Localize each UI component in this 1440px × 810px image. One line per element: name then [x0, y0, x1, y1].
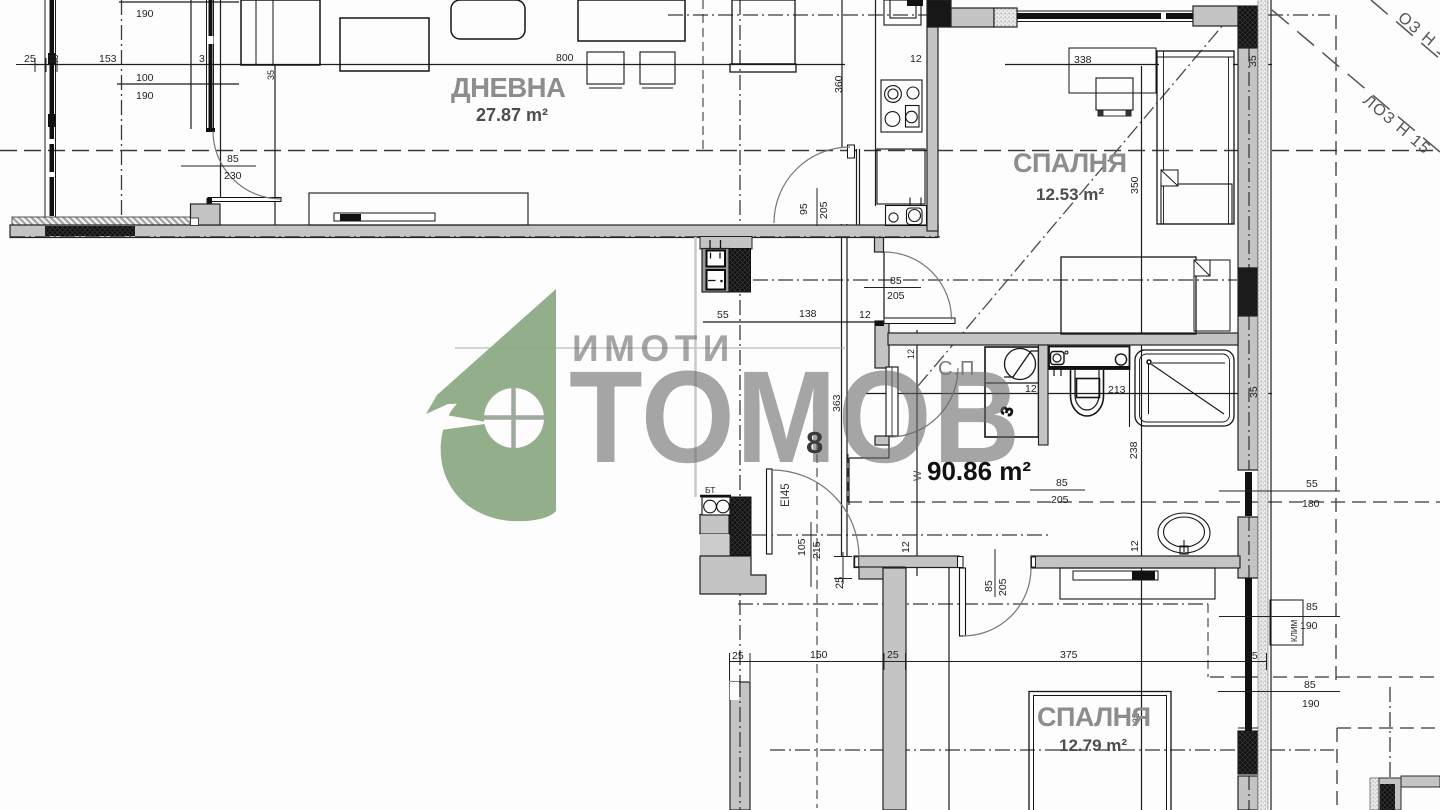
svg-text:338: 338 — [1074, 54, 1092, 66]
svg-text:100: 100 — [136, 72, 154, 84]
svg-text:363: 363 — [831, 394, 843, 412]
svg-text:85: 85 — [890, 275, 902, 287]
svg-text:85: 85 — [227, 153, 239, 165]
svg-text:25: 25 — [834, 577, 846, 589]
svg-text:150: 150 — [810, 649, 828, 661]
svg-text:55: 55 — [717, 309, 729, 321]
svg-text:СПАЛНЯ: СПАЛНЯ — [1013, 148, 1127, 178]
svg-text:12: 12 — [900, 541, 912, 553]
svg-text:25: 25 — [24, 53, 36, 65]
svg-text:190: 190 — [1300, 620, 1318, 632]
svg-text:800: 800 — [556, 52, 574, 64]
svg-text:205: 205 — [997, 578, 1009, 596]
svg-text:3: 3 — [199, 53, 205, 65]
svg-text:8: 8 — [806, 425, 823, 460]
svg-text:35: 35 — [1246, 650, 1258, 662]
svg-text:190: 190 — [136, 90, 154, 102]
svg-text:105: 105 — [796, 538, 808, 556]
svg-text:205: 205 — [1051, 494, 1069, 506]
svg-text:230: 230 — [224, 170, 242, 182]
svg-text:С.П: С.П — [938, 358, 975, 380]
svg-text:375: 375 — [1060, 649, 1078, 661]
svg-text:85: 85 — [983, 580, 995, 592]
svg-text:12: 12 — [910, 53, 922, 65]
svg-text:215: 215 — [811, 541, 823, 559]
svg-text:ДНЕВНА: ДНЕВНА — [451, 72, 566, 103]
svg-text:85: 85 — [1304, 679, 1316, 691]
svg-text:12: 12 — [47, 53, 59, 65]
svg-text:190: 190 — [136, 8, 154, 20]
svg-text:205: 205 — [818, 201, 830, 219]
svg-text:12: 12 — [1129, 540, 1141, 552]
svg-text:12: 12 — [1025, 383, 1037, 395]
svg-text:12.53 m²: 12.53 m² — [1036, 185, 1104, 204]
svg-text:85: 85 — [1306, 601, 1318, 613]
svg-text:25: 25 — [887, 649, 899, 661]
svg-text:27.87 m²: 27.87 m² — [476, 105, 548, 125]
svg-text:238: 238 — [1128, 441, 1140, 459]
svg-text:90.86 m²: 90.86 m² — [927, 456, 1031, 486]
svg-text:35: 35 — [1247, 55, 1259, 67]
svg-text:35: 35 — [1248, 386, 1260, 398]
svg-text:25: 25 — [732, 650, 744, 662]
svg-text:55: 55 — [1306, 478, 1318, 490]
svg-text:153: 153 — [99, 53, 117, 65]
svg-text:360: 360 — [833, 75, 845, 93]
svg-text:190: 190 — [1302, 698, 1320, 710]
svg-text:138: 138 — [799, 308, 817, 320]
svg-text:EI45: EI45 — [780, 483, 792, 507]
svg-text:180: 180 — [1302, 498, 1320, 510]
svg-text:350: 350 — [1129, 176, 1141, 194]
svg-text:12.79 m²: 12.79 m² — [1059, 736, 1127, 755]
svg-text:СПАЛНЯ: СПАЛНЯ — [1037, 702, 1151, 732]
svg-text:213: 213 — [1108, 384, 1126, 396]
svg-text:КЛИМ: КЛИМ — [1290, 619, 1299, 642]
svg-text:85: 85 — [1056, 477, 1068, 489]
svg-text:95: 95 — [798, 203, 810, 215]
svg-text:35: 35 — [266, 70, 276, 80]
svg-text:205: 205 — [887, 290, 905, 302]
svg-text:12: 12 — [859, 309, 871, 321]
